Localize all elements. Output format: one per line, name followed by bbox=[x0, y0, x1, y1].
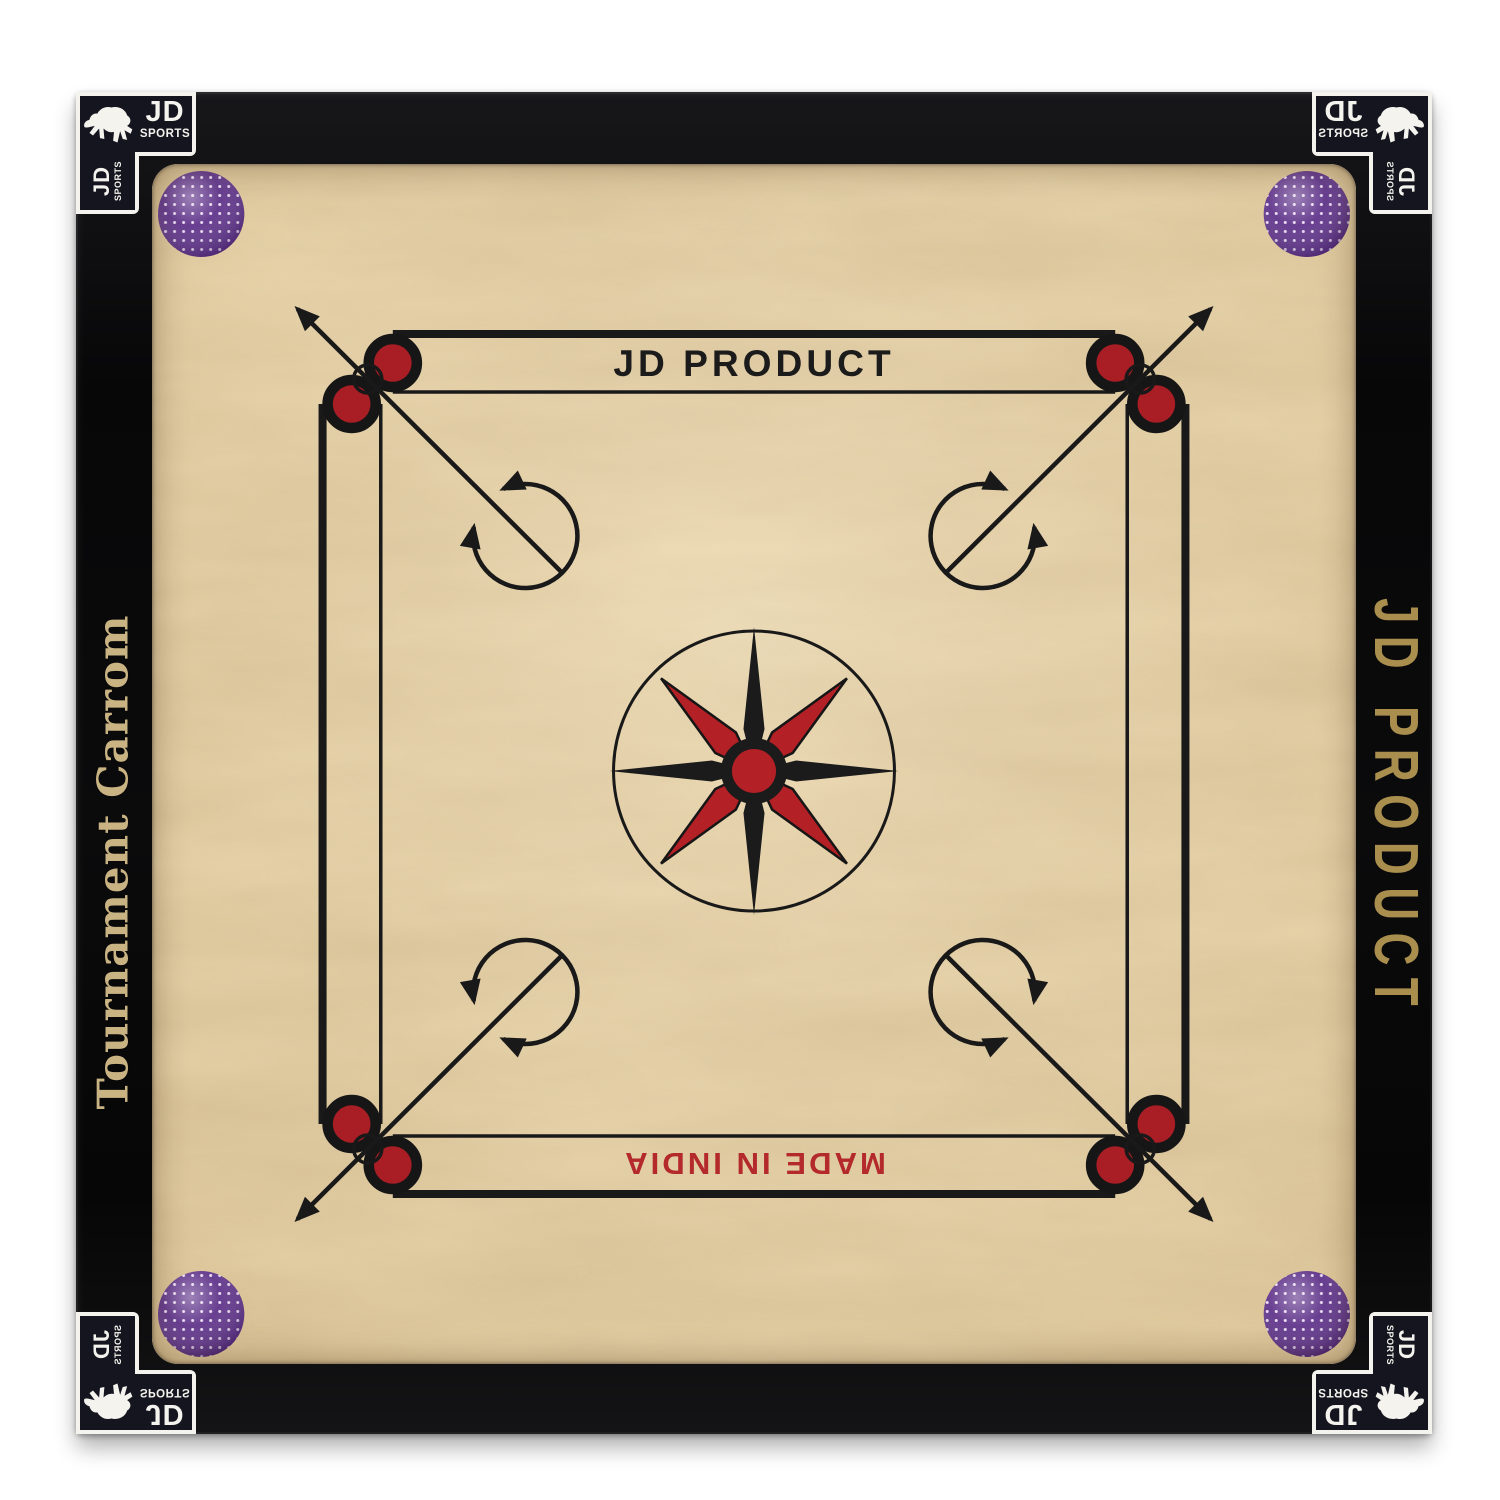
corner-logo-wordmark-vertical: JD SPORTS bbox=[1373, 152, 1428, 210]
corner-logo-bottom-left: JD SPORTS JD SPORTS bbox=[76, 1312, 196, 1434]
corner-logo-wordmark: JD SPORTS bbox=[1316, 1386, 1370, 1429]
board-frame: Tournament Carrom JD PRODUCT bbox=[76, 92, 1432, 1434]
corner-logo-wordmark: JD SPORTS bbox=[138, 98, 192, 141]
horse-icon bbox=[1371, 1373, 1431, 1429]
carrom-board-photo: Tournament Carrom JD PRODUCT bbox=[0, 0, 1500, 1500]
corner-logo-wordmark: JD SPORTS bbox=[138, 1386, 192, 1429]
board-top-label: JD PRODUCT bbox=[613, 342, 894, 384]
horse-icon bbox=[77, 97, 137, 153]
horse-icon bbox=[77, 1373, 137, 1429]
left-rail-title: Tournament Carrom bbox=[89, 615, 138, 1110]
horse-icon bbox=[1371, 97, 1431, 153]
corner-logo-wordmark-vertical: JD SPORTS bbox=[80, 1316, 135, 1374]
corner-logo-wordmark-vertical: JD SPORTS bbox=[80, 152, 135, 210]
board-markings: JD PRODUCT MADE IN INDIA bbox=[152, 164, 1356, 1364]
right-rail-title: JD PRODUCT bbox=[1359, 598, 1431, 1018]
corner-logo-wordmark-vertical: JD SPORTS bbox=[1373, 1316, 1428, 1374]
corner-logo-wordmark: JD SPORTS bbox=[1316, 98, 1370, 141]
corner-logo-bottom-right: JD SPORTS JD SPORTS bbox=[1312, 1312, 1432, 1434]
corner-logo-top-right: JD SPORTS JD SPORTS bbox=[1312, 92, 1432, 214]
corner-logo-top-left: JD SPORTS JD SPORTS bbox=[76, 92, 196, 214]
board-bottom-label: MADE IN INDIA bbox=[622, 1146, 886, 1181]
playing-surface: JD PRODUCT MADE IN INDIA bbox=[152, 164, 1356, 1364]
